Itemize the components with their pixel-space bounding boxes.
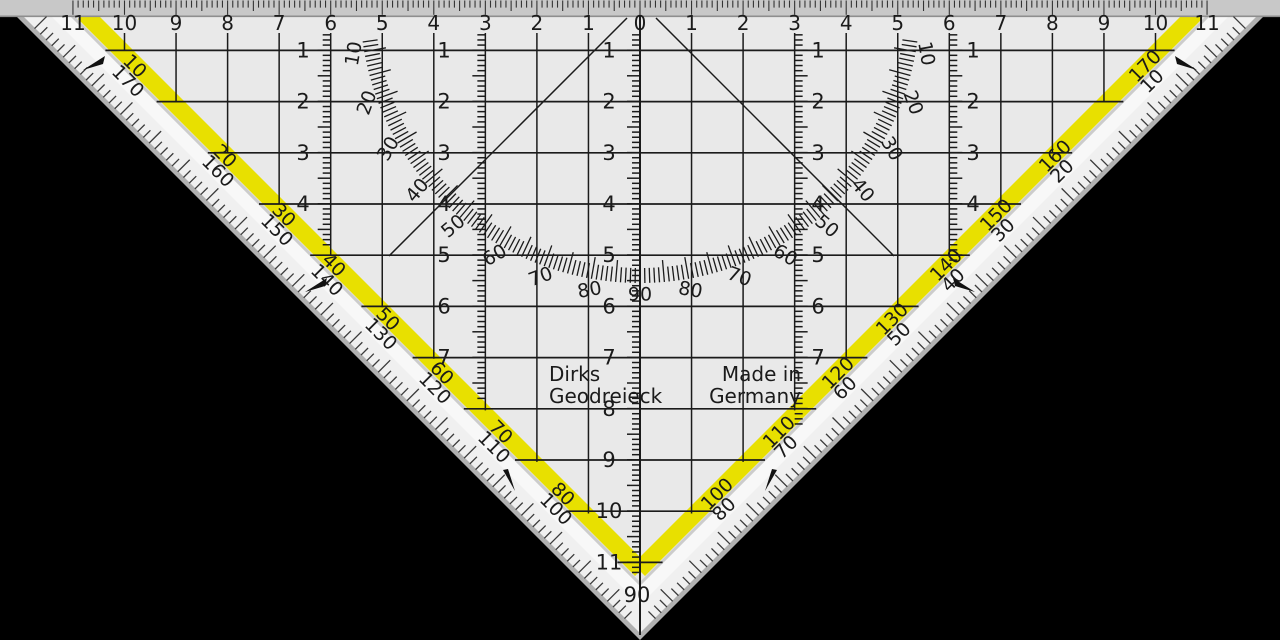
top-scale-number: 8	[221, 11, 234, 35]
centre-scale-number: 4	[602, 192, 615, 216]
geodreieck-illustration: Geodreieck set square protractor on blac…	[0, 0, 1280, 640]
right-inner-scale-number: 6	[811, 294, 824, 318]
centre-scale-number: 11	[596, 550, 623, 574]
centre-scale-number: 9	[602, 448, 615, 472]
left-outer-scale-number: 2	[296, 90, 309, 114]
centre-scale-number: 5	[602, 243, 615, 267]
protractor-degree-label: 10	[341, 40, 367, 68]
protractor-degree-label: 80	[576, 277, 604, 303]
origin-line1: Made in	[722, 362, 801, 386]
top-scale-number: 3	[479, 11, 492, 35]
right-outer-scale-number: 3	[966, 141, 979, 165]
left-inner-scale-number: 2	[437, 90, 450, 114]
protractor-degree-label: 90	[628, 283, 652, 305]
top-scale-number: 1	[582, 11, 595, 35]
centre-scale-number: 6	[602, 294, 615, 318]
left-outer-scale-number: 4	[296, 192, 309, 216]
top-scale-number: 9	[1098, 11, 1111, 35]
top-scale-number: 4	[840, 11, 853, 35]
centre-scale-number: 2	[602, 90, 615, 114]
top-scale-number: 6	[943, 11, 956, 35]
top-scale-number: 1	[685, 11, 698, 35]
right-outer-scale-number: 4	[966, 192, 979, 216]
right-inner-scale-number: 2	[811, 90, 824, 114]
top-scale-number: 6	[324, 11, 337, 35]
top-scale-number: 10	[1143, 11, 1168, 35]
left-outer-scale-number: 3	[296, 141, 309, 165]
geodreieck-svg: 1110987654321012345678910111234567891011…	[0, 0, 1280, 640]
centre-scale-number: 3	[602, 141, 615, 165]
protractor-degree-label: 80	[677, 277, 705, 303]
top-scale-number: 10	[112, 11, 137, 35]
brand-line2: Geodreieck	[549, 384, 663, 408]
left-inner-scale-number: 3	[437, 141, 450, 165]
left-inner-scale-number: 1	[437, 38, 450, 62]
top-scale-number: 9	[170, 11, 183, 35]
top-scale-number: 11	[1194, 11, 1219, 35]
centre-scale-number: 1	[602, 38, 615, 62]
centre-scale-number: 10	[596, 499, 623, 523]
origin-line2: Germany	[709, 384, 801, 408]
right-inner-scale-number: 5	[811, 243, 824, 267]
right-outer-scale-number: 1	[966, 38, 979, 62]
top-scale-number: 2	[531, 11, 544, 35]
top-scale-number: 7	[994, 11, 1007, 35]
left-inner-scale-number: 4	[437, 192, 450, 216]
brand-line1: Dirks	[549, 362, 600, 386]
top-scale-number: 7	[273, 11, 286, 35]
top-scale-number: 5	[891, 11, 904, 35]
top-scale-number: 5	[376, 11, 389, 35]
protractor-degree-label: 10	[913, 40, 939, 68]
left-inner-scale-number: 5	[437, 243, 450, 267]
top-scale-number: 4	[427, 11, 440, 35]
top-scale-number: 8	[1046, 11, 1059, 35]
top-scale-number: 11	[60, 11, 85, 35]
right-inner-scale-number: 7	[811, 346, 824, 370]
left-inner-scale-number: 6	[437, 294, 450, 318]
top-scale-number: 2	[737, 11, 750, 35]
right-outer-scale-number: 2	[966, 90, 979, 114]
right-inner-scale-number: 3	[811, 141, 824, 165]
centre-scale-number: 7	[602, 346, 615, 370]
right-inner-scale-number: 1	[811, 38, 824, 62]
left-outer-scale-number: 1	[296, 38, 309, 62]
apex-90-label: 90	[624, 583, 651, 607]
top-scale-number: 3	[788, 11, 801, 35]
